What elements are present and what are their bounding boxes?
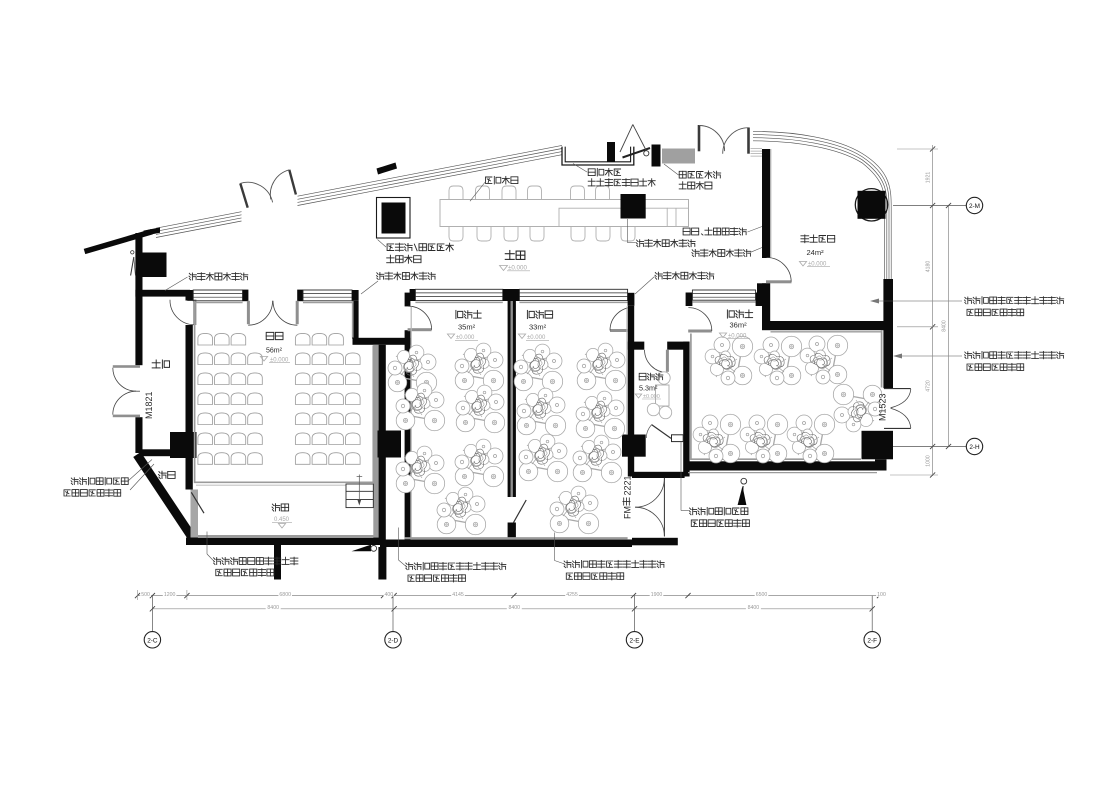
- svg-text:2-C: 2-C: [147, 637, 158, 644]
- svg-text:1200: 1200: [164, 592, 176, 598]
- svg-text:100: 100: [877, 592, 886, 598]
- svg-text:FM: FM: [623, 506, 633, 519]
- svg-text:2-E: 2-E: [630, 637, 640, 644]
- svg-text:8400: 8400: [942, 320, 948, 332]
- svg-text:24m²: 24m²: [807, 248, 825, 257]
- svg-text:6500: 6500: [756, 592, 768, 598]
- svg-text:1900: 1900: [651, 592, 663, 598]
- svg-text:2-F: 2-F: [867, 637, 877, 644]
- svg-text:8400: 8400: [748, 605, 760, 611]
- svg-text:36m²: 36m²: [730, 321, 748, 330]
- svg-text:4180: 4180: [926, 261, 932, 273]
- svg-text:2-H: 2-H: [969, 444, 980, 451]
- svg-text:33m²: 33m²: [529, 323, 547, 332]
- svg-text:6800: 6800: [279, 592, 291, 598]
- svg-text:4145: 4145: [452, 592, 464, 598]
- svg-text:1000: 1000: [926, 455, 932, 467]
- svg-text:8400: 8400: [509, 605, 521, 611]
- svg-text:M1821: M1821: [144, 391, 154, 419]
- svg-text:0.450: 0.450: [274, 517, 290, 523]
- svg-text:4720: 4720: [926, 380, 932, 392]
- svg-text:±0.000: ±0.000: [527, 335, 546, 341]
- svg-text:2221: 2221: [623, 475, 633, 495]
- svg-text:8400: 8400: [267, 605, 279, 611]
- svg-text:500: 500: [141, 592, 150, 598]
- svg-text:±0.000: ±0.000: [456, 335, 475, 341]
- svg-text:±0.000: ±0.000: [508, 265, 527, 272]
- svg-text:2-M: 2-M: [969, 203, 980, 210]
- svg-text:400: 400: [384, 592, 393, 598]
- svg-text:4255: 4255: [566, 592, 578, 598]
- svg-text:35m²: 35m²: [458, 323, 476, 332]
- svg-text:56m²: 56m²: [266, 348, 283, 355]
- svg-text:1921: 1921: [926, 172, 932, 184]
- svg-text:2-D: 2-D: [388, 637, 399, 644]
- svg-text:5.3m²: 5.3m²: [639, 384, 658, 393]
- svg-text:M1523: M1523: [878, 393, 888, 421]
